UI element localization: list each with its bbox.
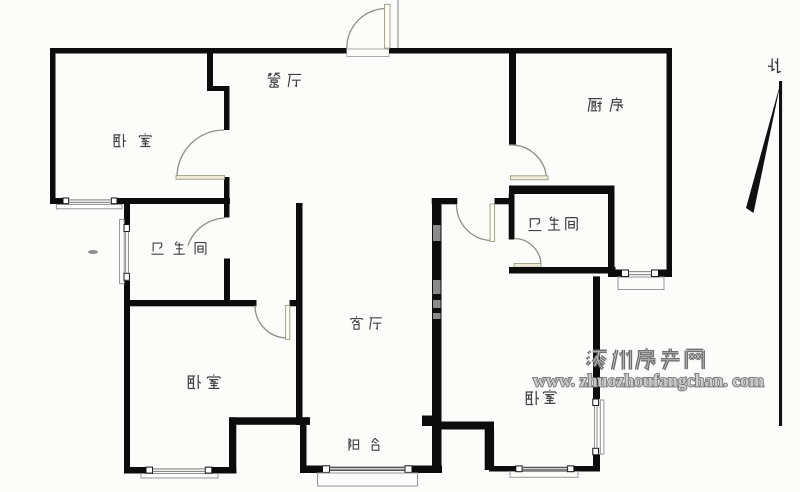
svg-text:www. zhuozhoufangchan. com: www. zhuozhoufangchan. com — [533, 371, 764, 391]
